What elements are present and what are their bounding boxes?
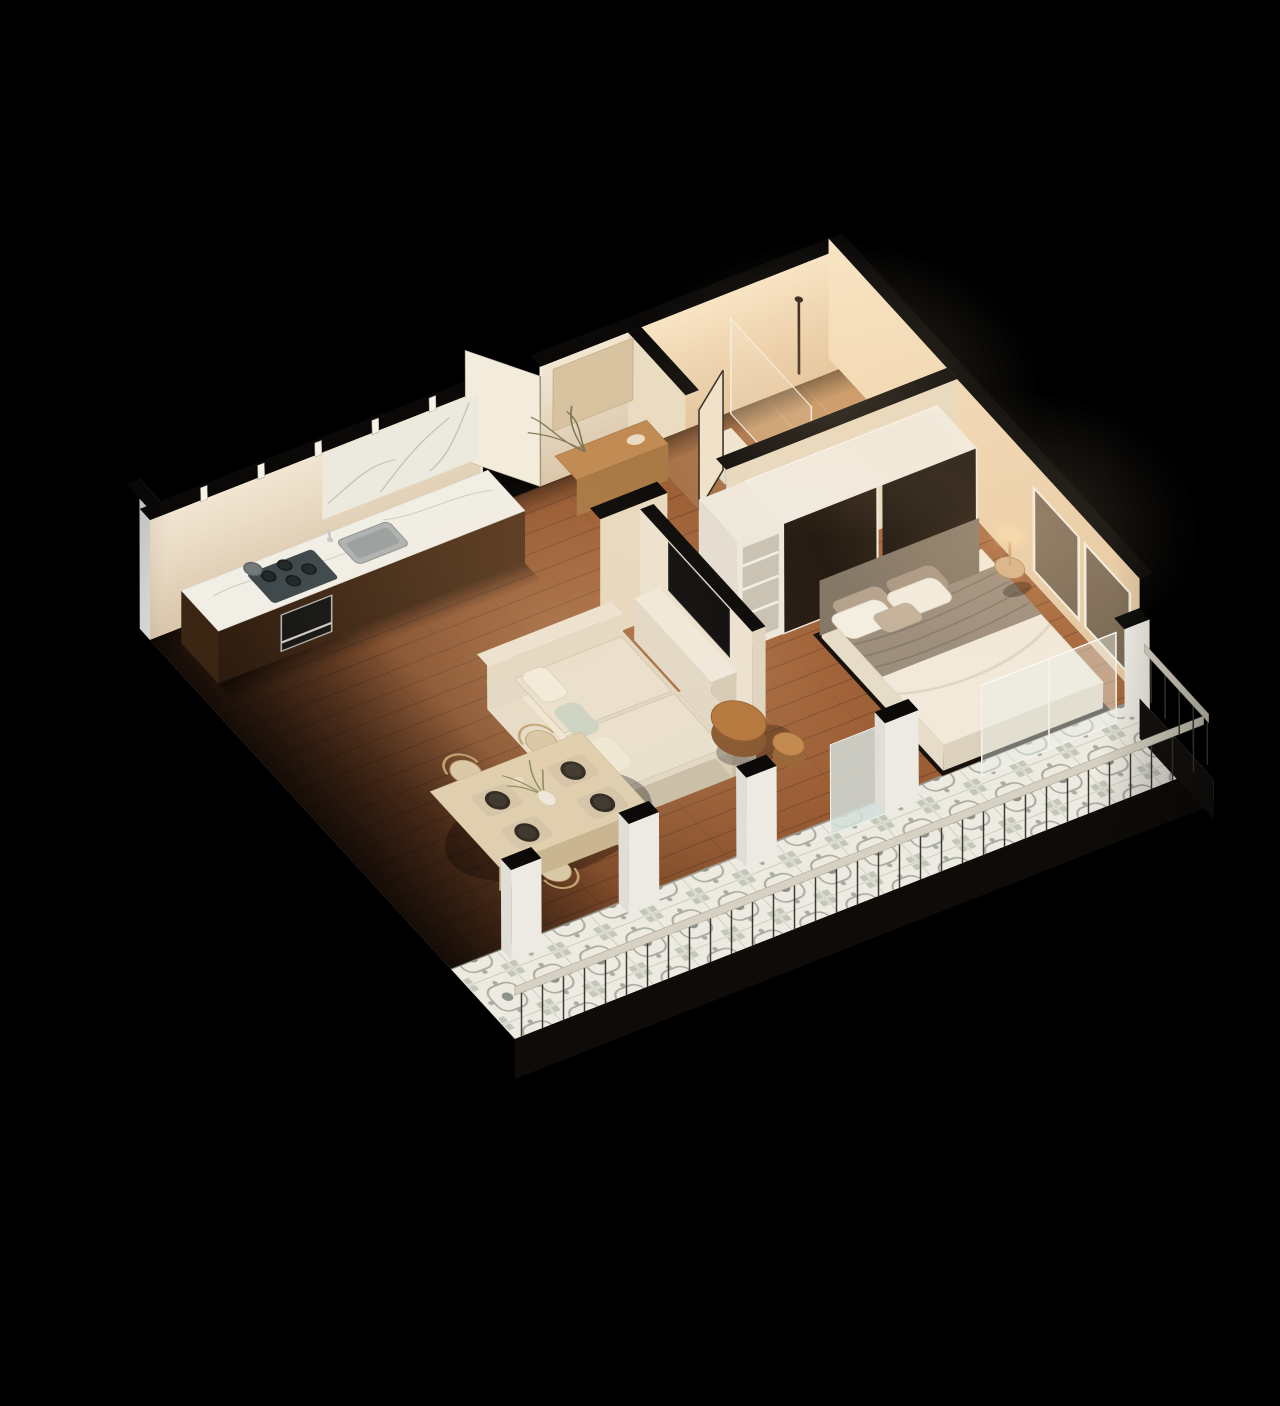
floor-plan-stage [0, 0, 1280, 1406]
vignette [0, 0, 1280, 1406]
floor-plan-render [0, 0, 1280, 1406]
